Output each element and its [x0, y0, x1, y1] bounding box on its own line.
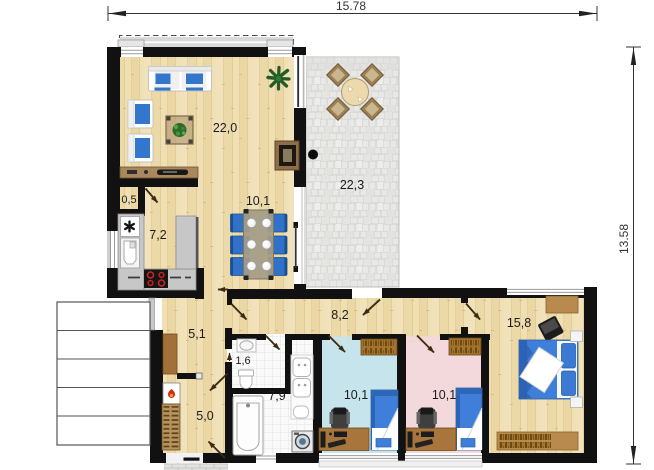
svg-text:10,1: 10,1 [432, 388, 456, 402]
svg-text:5,1: 5,1 [188, 327, 205, 341]
svg-text:1,6: 1,6 [235, 355, 250, 367]
svg-text:15.78: 15.78 [336, 0, 366, 13]
svg-text:13.58: 13.58 [617, 224, 631, 254]
svg-text:0,5: 0,5 [121, 194, 136, 206]
svg-text:10,1: 10,1 [344, 388, 368, 402]
svg-text:22,3: 22,3 [340, 178, 364, 192]
svg-text:7,2: 7,2 [149, 228, 166, 242]
svg-text:7,9: 7,9 [268, 389, 285, 403]
svg-text:5,0: 5,0 [196, 409, 213, 423]
svg-text:22,0: 22,0 [213, 121, 237, 135]
svg-text:10,1: 10,1 [246, 194, 270, 208]
svg-text:15,8: 15,8 [507, 316, 531, 330]
svg-text:8,2: 8,2 [331, 308, 348, 322]
